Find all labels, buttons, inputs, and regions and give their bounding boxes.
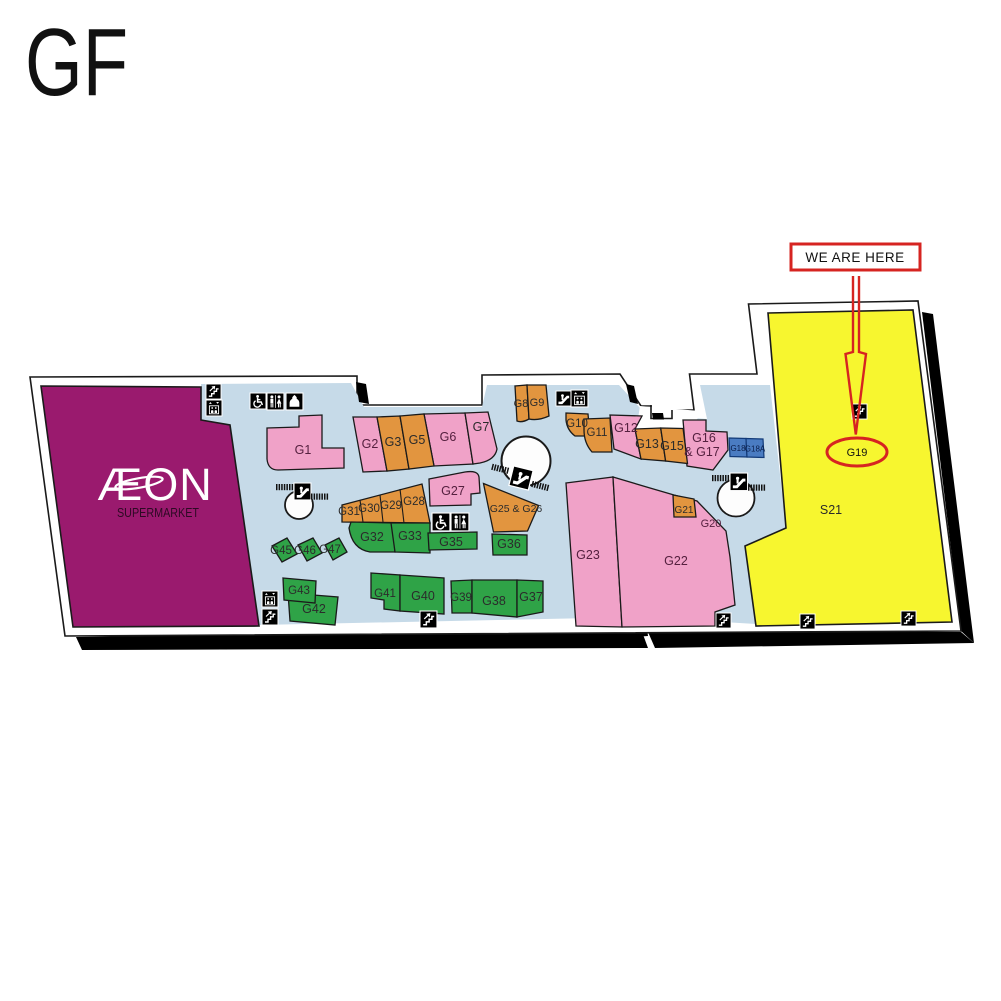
svg-text:G23: G23: [576, 548, 600, 562]
svg-text:G28: G28: [403, 496, 425, 508]
svg-text:G21: G21: [675, 505, 694, 516]
svg-text:G39: G39: [450, 592, 472, 604]
svg-text:G18: G18: [730, 444, 746, 453]
svg-text:G37: G37: [519, 590, 543, 604]
svg-text:G12: G12: [614, 421, 638, 435]
svg-text:G33: G33: [398, 529, 422, 543]
svg-text:G11: G11: [587, 427, 608, 439]
svg-text:& G17: & G17: [684, 445, 719, 459]
svg-text:SUPERMARKET: SUPERMARKET: [117, 505, 199, 520]
svg-text:G9: G9: [530, 397, 545, 409]
svg-text:G7: G7: [473, 420, 490, 434]
svg-text:G29: G29: [380, 500, 402, 512]
svg-text:G25 & G26: G25 & G26: [490, 503, 543, 515]
svg-text:G27: G27: [441, 484, 465, 498]
svg-text:G8: G8: [514, 398, 529, 410]
svg-text:G3: G3: [385, 435, 402, 449]
svg-text:G42: G42: [302, 602, 326, 616]
svg-text:WE ARE HERE: WE ARE HERE: [805, 250, 904, 265]
svg-text:G36: G36: [497, 537, 521, 551]
svg-text:G35: G35: [439, 535, 463, 549]
svg-text:G43: G43: [288, 585, 310, 597]
svg-text:G31: G31: [338, 506, 360, 518]
svg-text:G1: G1: [295, 443, 312, 457]
svg-text:G10: G10: [566, 418, 588, 430]
svg-text:G6: G6: [440, 430, 457, 444]
svg-text:G46: G46: [294, 545, 316, 557]
svg-text:G40: G40: [411, 589, 435, 603]
svg-text:G19: G19: [847, 447, 868, 459]
svg-text:G45: G45: [270, 545, 292, 557]
svg-text:G15: G15: [660, 439, 684, 453]
svg-text:G13: G13: [635, 437, 659, 451]
svg-text:G41: G41: [374, 588, 396, 600]
svg-text:G18A: G18A: [745, 445, 766, 454]
svg-text:G38: G38: [482, 594, 506, 608]
svg-text:G2: G2: [362, 437, 379, 451]
svg-text:G5: G5: [409, 433, 426, 447]
svg-text:GF: GF: [25, 9, 128, 116]
svg-text:G32: G32: [360, 530, 384, 544]
svg-text:G47: G47: [319, 544, 341, 556]
svg-text:G30: G30: [358, 503, 380, 515]
svg-text:G16: G16: [692, 431, 716, 445]
svg-text:S21: S21: [820, 503, 842, 517]
svg-text:G20: G20: [701, 518, 722, 530]
svg-text:G22: G22: [664, 554, 688, 568]
